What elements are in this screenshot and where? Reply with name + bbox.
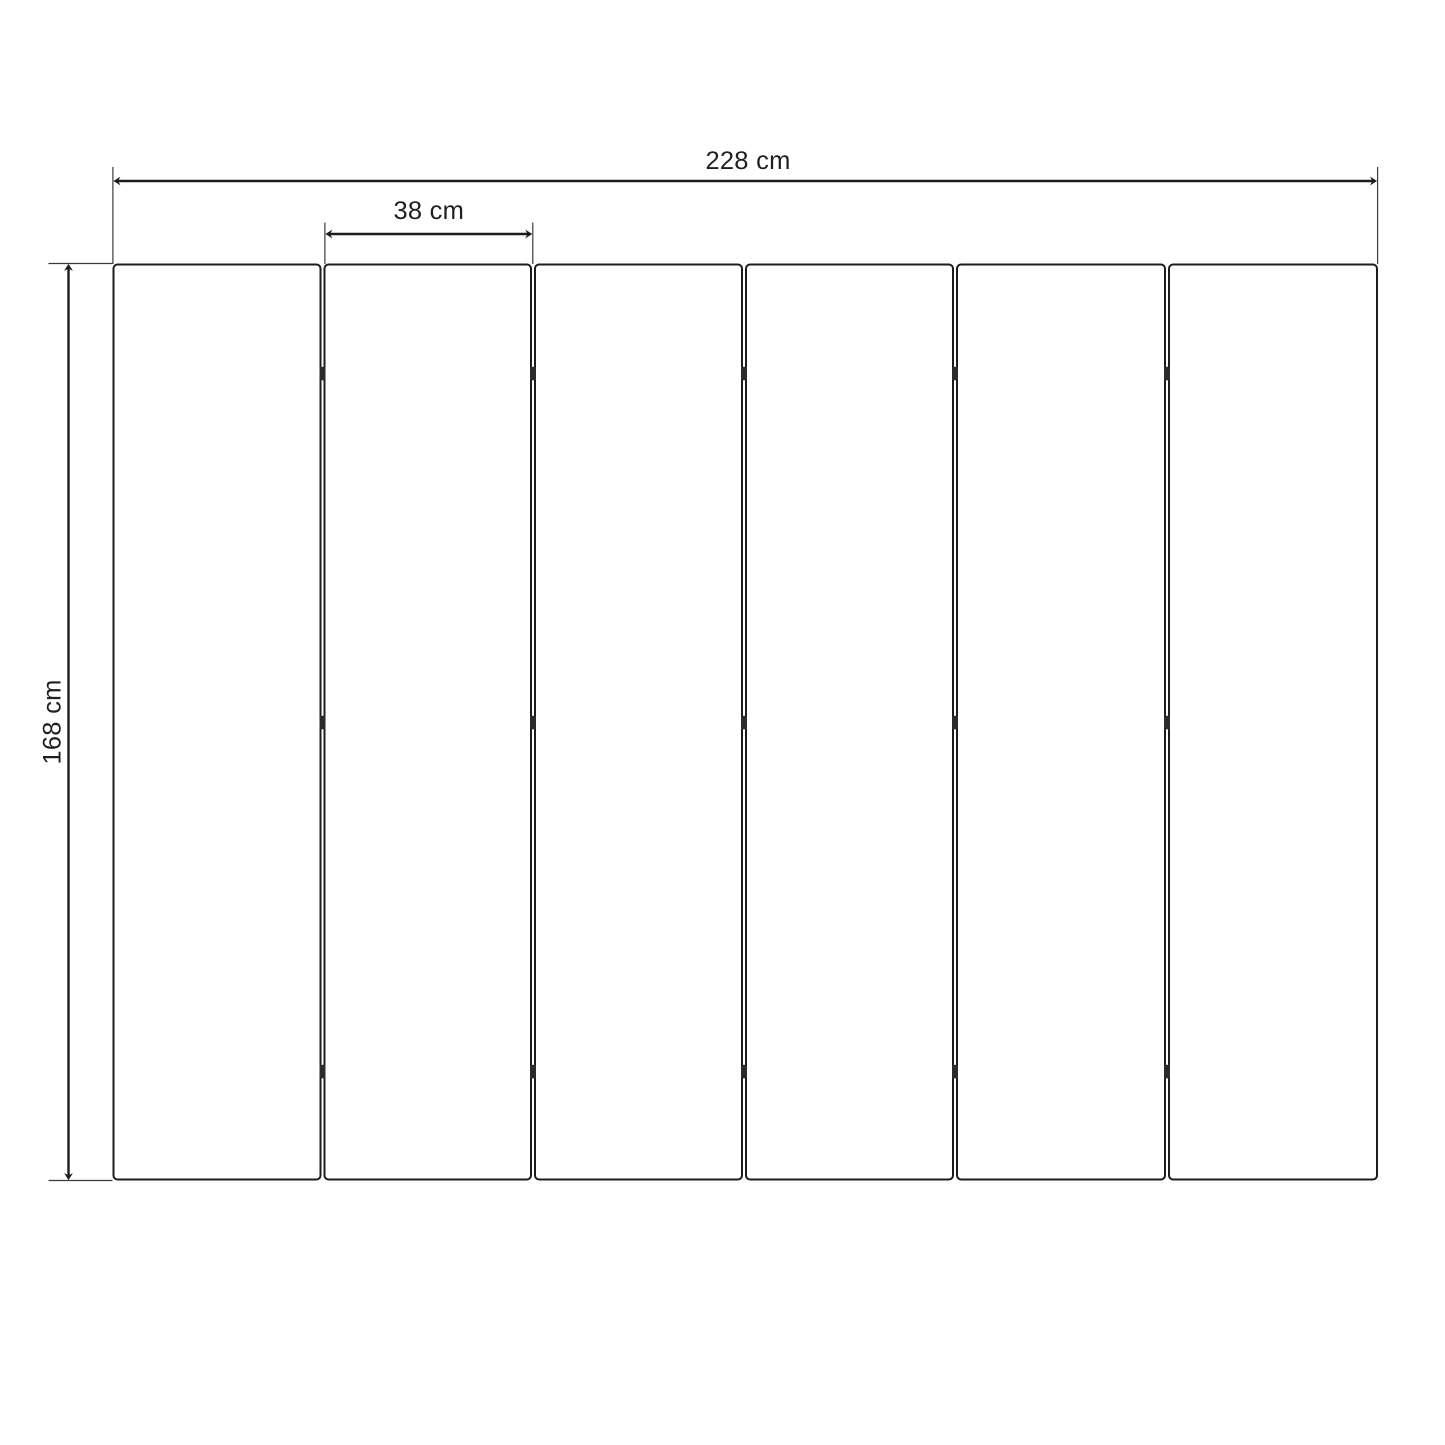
svg-text:228 cm: 228 cm	[705, 147, 790, 175]
svg-text:168 cm: 168 cm	[39, 679, 67, 764]
svg-text:38 cm: 38 cm	[393, 197, 464, 225]
